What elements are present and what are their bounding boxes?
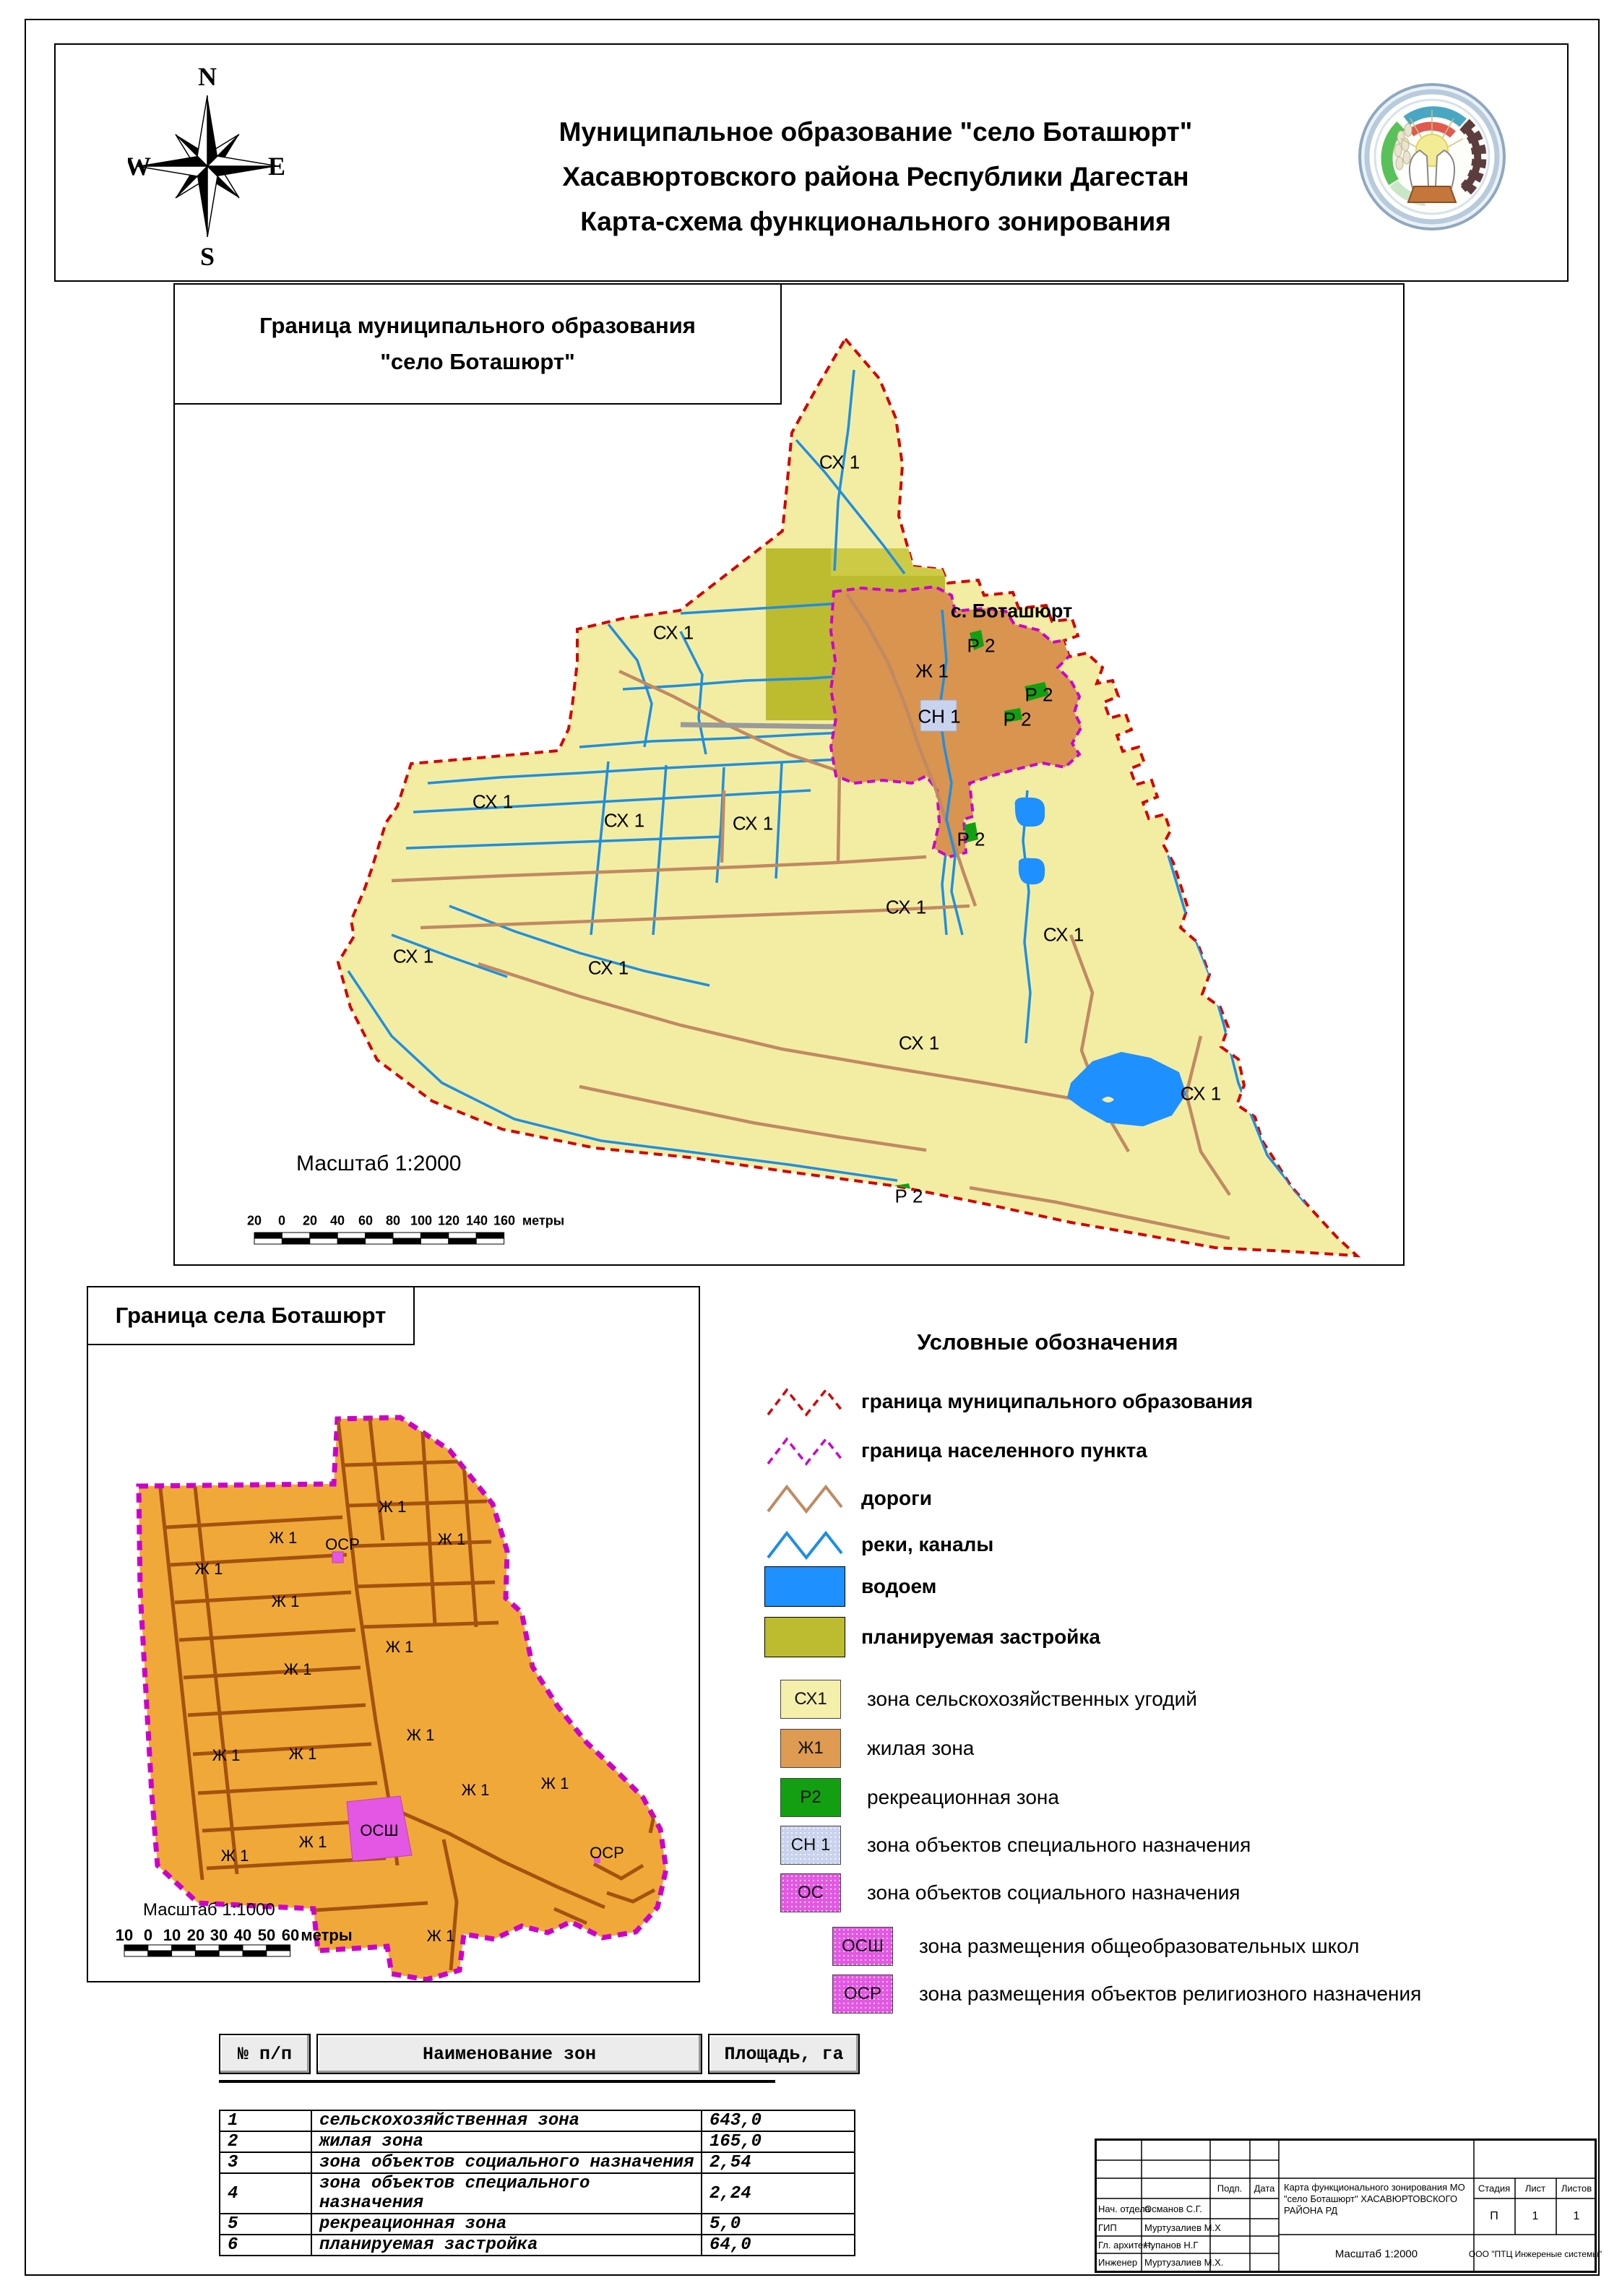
map-label: 60 [358, 1214, 373, 1229]
map-label: Ж 1 [386, 1638, 414, 1657]
legend-label: реки, каналы [861, 1533, 993, 1556]
main-map-title: Граница муниципального образования "село… [173, 283, 782, 405]
legend-item-planned: планируемая застройка [764, 1617, 1100, 1657]
map-label: Р 2 [1024, 684, 1053, 707]
map-label: Ж 1 [284, 1660, 312, 1679]
map-label: 140 [466, 1214, 488, 1229]
agriculture-swatch: СХ1 [770, 1680, 851, 1719]
legend-item-social: ОС зона объектов социального назначения [770, 1873, 1240, 1913]
rivers-icon [764, 1527, 845, 1562]
legend-item-recreation: Р2 рекреационная зона [770, 1777, 1059, 1818]
stamp-role: Нач. отдела [1098, 2204, 1150, 2214]
zones-table-header: № п/п Наименование зон Площадь, га [219, 2034, 860, 2074]
map-label: Ж 1 [299, 1833, 327, 1852]
stamp-name: Муртузалиев М.Х. [1144, 2257, 1223, 2268]
north-arrow-icon: N S W E [128, 59, 287, 269]
legend-title: Условные обозначения [907, 1329, 1189, 1355]
compass-s: S [200, 242, 215, 269]
residential-swatch: Ж1 [770, 1729, 851, 1768]
zones-table: 1сельскохозяйственная зона643,0 2жилая з… [219, 2110, 855, 2256]
stamp-sheet-label: Лист [1525, 2183, 1545, 2194]
map-label: Р 2 [967, 635, 995, 657]
map-label: СХ 1 [819, 452, 860, 474]
table-row: 6планируемая застройка64,0 [220, 2235, 855, 2256]
special-swatch: СН 1 [770, 1826, 851, 1865]
map-label: Р 2 [894, 1186, 923, 1208]
map-label: с. Боташюрт [951, 600, 1072, 623]
legend-label: зона размещения общеобразовательных школ [919, 1935, 1359, 1958]
map-label: 20 [247, 1214, 262, 1229]
map-label: 0 [278, 1214, 285, 1229]
map-label: ОСР [325, 1535, 360, 1554]
stamp-stage-label: Стадия [1478, 2183, 1510, 2194]
legend-label: зона объектов социального назначения [867, 1881, 1240, 1904]
stamp-name: Османов С.Г. [1144, 2204, 1202, 2214]
title-block: Подп. Дата Нач. отдела Османов С.Г. ГИП … [1095, 2139, 1597, 2273]
schools-swatch: ОСШ [822, 1927, 903, 1966]
map-label: 10 [163, 1926, 181, 1945]
social-swatch: ОС [770, 1873, 851, 1912]
map-label: Ж 1 [195, 1560, 223, 1579]
map-label: Р 2 [957, 829, 985, 851]
legend-label: граница населенного пункта [861, 1439, 1147, 1462]
legend-item-rivers: реки, каналы [764, 1524, 993, 1565]
map-label: Ж 1 [272, 1592, 300, 1611]
legend-label: водоем [861, 1575, 936, 1598]
legend-label: планируемая застройка [861, 1626, 1100, 1649]
religious-swatch: ОСР [822, 1975, 903, 2014]
recreation-swatch: Р2 [770, 1778, 851, 1817]
map-label: Ж 1 [289, 1745, 317, 1764]
legend-item-agriculture: СХ1 зона сельскохозяйственных угодий [770, 1679, 1197, 1719]
map-label: Ж 1 [269, 1529, 298, 1548]
legend-item-schools: ОСШ зона размещения общеобразовательных … [822, 1926, 1359, 1967]
map-label: СН 1 [918, 706, 960, 728]
legend-item-religious: ОСР зона размещения объектов религиозног… [822, 1974, 1421, 2014]
stamp-company: ООО "ПТЦ Инжереные системы" [1469, 2249, 1602, 2259]
table-row: 3зона объектов социального назначения2,5… [220, 2152, 855, 2173]
map-label: Р 2 [1003, 709, 1031, 731]
stamp-sheets-label: Листов [1561, 2183, 1592, 2194]
main-map-scale-caption: Масштаб 1:2000 [296, 1152, 461, 1176]
stamp-name: Чупанов Н.Г [1144, 2240, 1198, 2250]
map-label: Ж 1 [407, 1726, 435, 1745]
map-label: Ж 1 [212, 1746, 241, 1765]
municipal-boundary-icon [764, 1384, 845, 1419]
map-label: 20 [187, 1926, 204, 1945]
col-header-num: № п/п [219, 2034, 311, 2074]
map-label: 100 [410, 1214, 432, 1229]
map-sheet: N S W E Муниципальное образование "село … [0, 0, 1622, 2296]
map-label: Ж 1 [221, 1847, 249, 1865]
map-label: метры [301, 1926, 352, 1945]
main-map-title-line1: Граница муниципального образования [175, 313, 780, 339]
main-map-scale-bar [253, 1231, 513, 1246]
map-label: 20 [303, 1214, 317, 1229]
table-underline [219, 2080, 775, 2083]
map-label: СХ 1 [733, 813, 773, 835]
village-map-drawing [88, 1287, 699, 1981]
stamp-sheets-value: 1 [1574, 2210, 1580, 2223]
legend-label: граница муниципального образования [861, 1390, 1253, 1413]
grey-road [681, 725, 843, 727]
stamp-date-col: Дата [1254, 2183, 1275, 2194]
main-map: Граница муниципального образования "село… [173, 283, 1405, 1266]
legend-label: рекреационная зона [867, 1786, 1059, 1809]
map-label: метры [522, 1214, 564, 1229]
stamp-sheet-value: 1 [1532, 2210, 1539, 2223]
stamp-doc-title: Карта функционального зонирования МО "се… [1284, 2182, 1469, 2217]
village-map: Граница села Боташюрт Масштаб 1:1000 Ж 1… [87, 1286, 700, 1982]
legend-item-special: СН 1 зона объектов специального назначен… [770, 1825, 1251, 1865]
stamp-sign-col: Подп. [1217, 2183, 1243, 2194]
map-label: 80 [386, 1214, 400, 1229]
map-label: СХ 1 [473, 791, 513, 813]
map-label: СХ 1 [886, 897, 926, 919]
page-title: Муниципальное образование "село Боташюрт… [460, 110, 1291, 244]
map-label: СХ 1 [1043, 924, 1084, 946]
legend-item-settlement-boundary: граница населенного пункта [764, 1430, 1147, 1471]
roads-icon [764, 1481, 845, 1516]
map-label: СХ 1 [604, 810, 644, 832]
main-map-title-line2: "село Боташюрт" [175, 349, 780, 375]
stamp-scale: Масштаб 1:2000 [1335, 2248, 1418, 2261]
compass-n: N [198, 62, 217, 91]
map-label: Ж 1 [379, 1498, 407, 1516]
col-header-area: Площадь, га [708, 2034, 860, 2074]
page-title-line3: Карта-схема функционального зонирования [460, 199, 1291, 244]
legend-item-municipal-boundary: граница муниципального образования [764, 1381, 1253, 1422]
stamp-role: ГИП [1098, 2222, 1117, 2233]
water-swatch [764, 1566, 845, 1607]
map-label: СХ 1 [1181, 1083, 1221, 1105]
map-label: Ж 1 [915, 660, 949, 683]
planned-swatch [764, 1617, 845, 1657]
map-label: СХ 1 [899, 1032, 939, 1055]
col-header-name: Наименование зон [316, 2034, 702, 2074]
village-map-scale-caption: Масштаб 1:1000 [143, 1900, 275, 1920]
map-label: Ж 1 [438, 1530, 466, 1549]
compass-e: E [268, 152, 285, 181]
legend-label: зона размещения объектов религиозного на… [919, 1982, 1421, 2006]
stamp-name: Муртузалиев М.Х [1144, 2222, 1221, 2233]
map-label: Ж 1 [462, 1781, 490, 1800]
table-row: 4зона объектов специального назначения2,… [220, 2173, 855, 2214]
compass-w: W [128, 152, 151, 181]
map-label: СХ 1 [393, 946, 433, 968]
map-label: 30 [210, 1926, 228, 1945]
table-row: 5рекреационная зона5,0 [220, 2214, 855, 2235]
legend-item-water: водоем [764, 1566, 936, 1607]
map-label: 0 [144, 1926, 152, 1945]
map-label: СХ 1 [653, 622, 694, 644]
legend-label: дороги [861, 1487, 932, 1510]
map-label: 10 [116, 1926, 133, 1945]
map-label: ОСШ [360, 1821, 398, 1840]
legend-label: зона сельскохозяйственных угодий [867, 1688, 1197, 1711]
settlement-boundary-icon [764, 1433, 845, 1468]
stamp-role: Инженер [1098, 2257, 1137, 2268]
header: N S W E Муниципальное образование "село … [54, 43, 1569, 282]
stamp-stage-value: П [1490, 2210, 1498, 2223]
map-label: 50 [258, 1926, 275, 1945]
village-map-scale-bar [123, 1943, 296, 1958]
village-map-title: Граница села Боташюрт [87, 1286, 415, 1345]
map-label: 60 [282, 1926, 299, 1945]
page-title-line1: Муниципальное образование "село Боташюрт… [460, 110, 1291, 155]
legend-item-roads: дороги [764, 1478, 932, 1519]
map-label: 160 [493, 1214, 515, 1229]
map-label: СХ 1 [588, 957, 629, 980]
main-map-drawing [175, 285, 1403, 1264]
district-emblem-icon [1356, 81, 1508, 233]
table-row: 2жилая зона165,0 [220, 2131, 855, 2152]
legend-label: зона объектов специального назначения [867, 1834, 1251, 1857]
page-title-line2: Хасавюртовского района Республики Дагест… [460, 155, 1291, 199]
map-label: Ж 1 [427, 1927, 455, 1946]
map-label: 120 [438, 1214, 460, 1229]
map-label: 40 [330, 1214, 345, 1229]
table-row: 1сельскохозяйственная зона643,0 [220, 2110, 855, 2131]
legend-label: жилая зона [867, 1737, 974, 1760]
map-label: Ж 1 [541, 1774, 569, 1793]
map-label: 40 [234, 1926, 251, 1945]
map-label: ОСР [590, 1844, 624, 1863]
legend-item-residential: Ж1 жилая зона [770, 1728, 974, 1769]
